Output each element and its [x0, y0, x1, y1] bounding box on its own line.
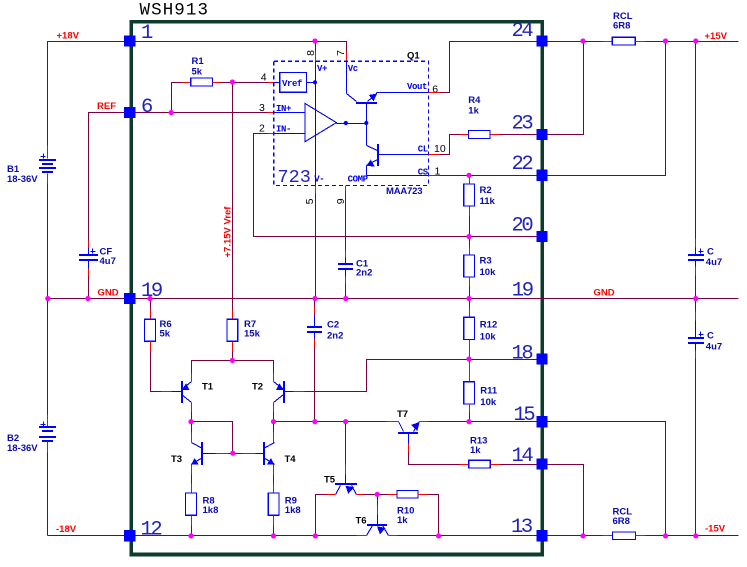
svg-text:Vref: Vref [282, 79, 302, 89]
svg-text:R11: R11 [480, 386, 498, 397]
svg-text:-15V: -15V [705, 523, 726, 534]
svg-text:IN+: IN+ [276, 104, 291, 114]
svg-text:Q1: Q1 [407, 50, 420, 61]
svg-text:9: 9 [335, 198, 347, 204]
svg-text:10: 10 [434, 143, 446, 155]
svg-text:12: 12 [141, 518, 162, 541]
svg-text:15: 15 [514, 404, 535, 427]
svg-text:T4: T4 [285, 454, 297, 465]
svg-text:15k: 15k [244, 329, 261, 340]
svg-text:COMP: COMP [348, 174, 369, 184]
svg-text:22: 22 [512, 153, 533, 176]
svg-text:CL: CL [418, 145, 428, 155]
svg-text:R1: R1 [192, 56, 205, 67]
svg-text:1k: 1k [470, 445, 481, 456]
svg-text:T1: T1 [202, 381, 214, 392]
svg-text:GND: GND [594, 287, 615, 298]
svg-text:5k: 5k [192, 67, 203, 78]
svg-text:13: 13 [511, 516, 532, 539]
svg-text:19: 19 [141, 280, 162, 303]
svg-text:T6: T6 [356, 516, 367, 527]
svg-text:+18V: +18V [57, 31, 80, 42]
svg-text:REF: REF [97, 101, 116, 112]
svg-text:R12: R12 [480, 320, 497, 331]
svg-text:7: 7 [335, 50, 347, 56]
svg-text:IN-: IN- [276, 125, 291, 135]
svg-text:1k: 1k [468, 106, 479, 117]
svg-text:23: 23 [512, 113, 533, 136]
svg-text:5k: 5k [160, 329, 171, 340]
svg-text:4u7: 4u7 [706, 341, 722, 352]
svg-text:3: 3 [259, 102, 265, 114]
svg-text:V+: V+ [317, 64, 327, 74]
svg-text:MAA723: MAA723 [386, 186, 422, 197]
svg-text:24: 24 [512, 20, 534, 43]
svg-text:2n2: 2n2 [356, 267, 372, 278]
svg-text:19: 19 [512, 280, 533, 303]
svg-text:6R8: 6R8 [613, 21, 630, 32]
svg-text:WSH913: WSH913 [140, 1, 210, 21]
svg-text:T5: T5 [324, 474, 336, 485]
svg-text:+15V: +15V [705, 31, 728, 42]
svg-text:20: 20 [512, 215, 534, 238]
svg-text:8: 8 [305, 50, 317, 56]
svg-text:14: 14 [512, 445, 534, 468]
svg-text:10k: 10k [480, 397, 497, 408]
svg-text:10k: 10k [480, 331, 497, 342]
svg-text:T7: T7 [397, 409, 408, 420]
svg-text:4u7: 4u7 [100, 256, 116, 267]
svg-text:V-: V- [314, 174, 324, 184]
svg-text:6: 6 [432, 83, 438, 95]
svg-text:-18V: -18V [56, 524, 77, 535]
svg-text:C: C [707, 331, 714, 342]
svg-text:18-36V: 18-36V [7, 443, 38, 454]
svg-text:Vout: Vout [407, 82, 427, 92]
svg-text:Vc: Vc [348, 64, 358, 74]
svg-text:5: 5 [304, 198, 316, 204]
svg-text:11k: 11k [480, 196, 496, 207]
svg-text:6R8: 6R8 [613, 516, 630, 527]
svg-text:2n2: 2n2 [327, 331, 343, 342]
svg-text:R3: R3 [480, 256, 492, 267]
svg-text:GND: GND [98, 287, 119, 298]
svg-text:+7.15V Vref: +7.15V Vref [222, 206, 233, 258]
svg-text:R2: R2 [480, 185, 492, 196]
svg-text:4: 4 [261, 71, 267, 83]
svg-text:10k: 10k [480, 267, 497, 278]
svg-text:T3: T3 [171, 454, 182, 465]
svg-text:1k8: 1k8 [285, 505, 301, 516]
svg-text:18-36V: 18-36V [7, 174, 38, 185]
svg-text:2: 2 [259, 123, 265, 135]
svg-text:723: 723 [278, 167, 311, 188]
svg-text:18: 18 [512, 342, 533, 365]
svg-text:4u7: 4u7 [706, 257, 722, 268]
svg-text:T2: T2 [252, 381, 263, 392]
svg-text:C2: C2 [327, 320, 339, 331]
svg-text:1k: 1k [397, 515, 408, 526]
svg-text:1k8: 1k8 [203, 505, 219, 516]
svg-text:6: 6 [141, 96, 152, 119]
